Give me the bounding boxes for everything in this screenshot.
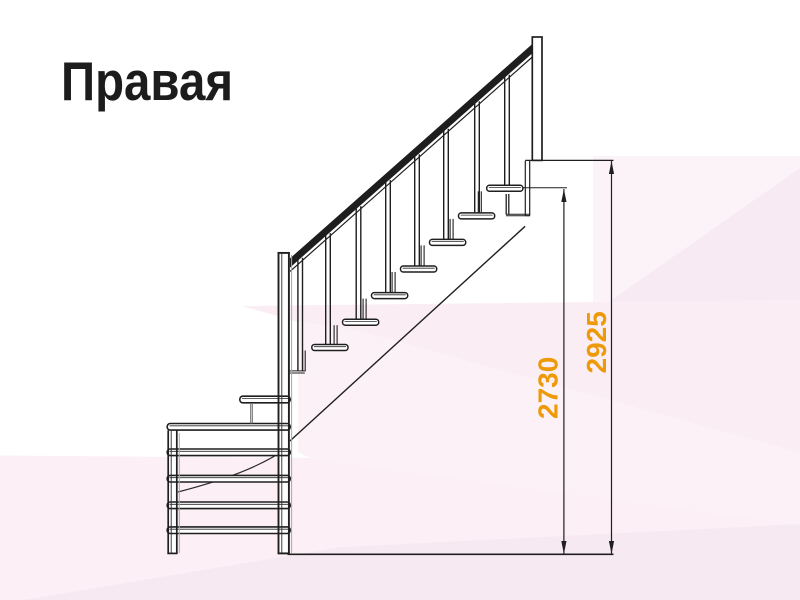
- svg-text:2730: 2730: [533, 357, 564, 419]
- svg-text:2925: 2925: [581, 311, 612, 373]
- svg-text:Правая: Правая: [61, 50, 233, 112]
